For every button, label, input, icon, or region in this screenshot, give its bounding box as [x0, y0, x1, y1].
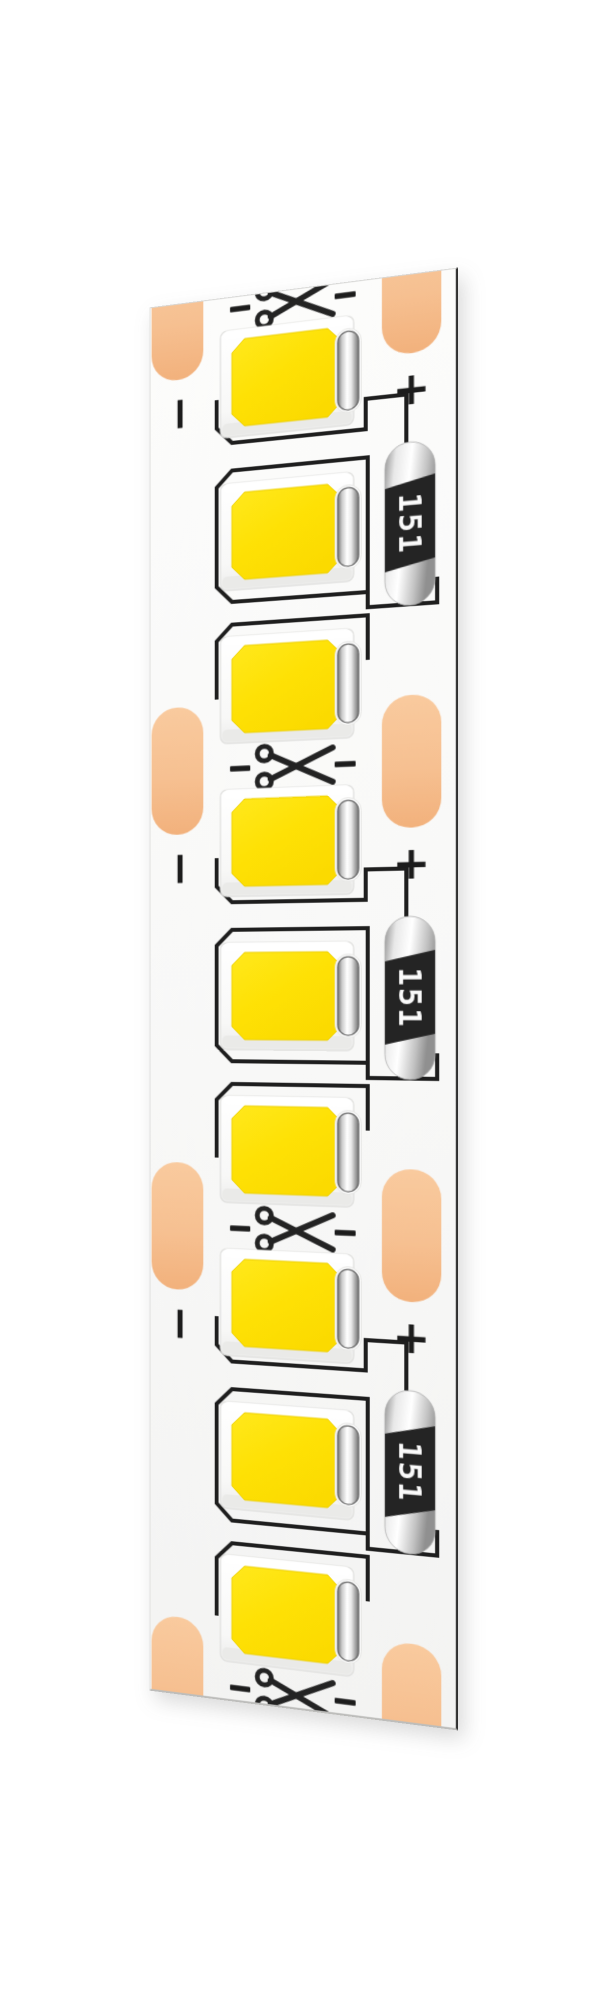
scissors-loop — [257, 1697, 271, 1713]
scissors-blade — [271, 1213, 333, 1245]
led-strip-shadow-wrap: −+151−+151−+151 — [143, 288, 453, 1707]
cut-dash-left — [230, 1225, 250, 1231]
led-emitter — [232, 952, 341, 1041]
scissors-loop — [257, 774, 271, 789]
led-chip — [220, 1248, 361, 1364]
minus-mark: − — [156, 1304, 207, 1345]
solder-pad-left — [152, 1614, 204, 1728]
scissors-loop — [257, 1236, 271, 1251]
led-strip-pcb: −+151−+151−+151 — [150, 268, 458, 1731]
scissors-loop — [257, 311, 271, 327]
cut-dash-right — [335, 1698, 356, 1706]
led-emitter — [232, 639, 341, 733]
resistor: 151 — [385, 440, 435, 607]
strip-segment: −+151 — [156, 782, 437, 1210]
scissors-icon — [257, 1670, 332, 1722]
led-electrode — [338, 1581, 359, 1662]
led-package-top-lip — [224, 941, 349, 951]
strip-segment: −+151 — [156, 1245, 437, 1686]
led-electrode — [338, 1113, 359, 1192]
scissors-blade — [271, 1218, 333, 1250]
scissors-loop — [257, 1670, 271, 1686]
led-emitter — [232, 327, 341, 427]
led-chip — [220, 1096, 361, 1208]
led-emitter — [232, 1412, 341, 1509]
led-chip — [220, 1401, 361, 1521]
scissors-blade — [271, 285, 333, 322]
cut-dash-left — [230, 305, 250, 313]
plus-mark: + — [393, 838, 431, 891]
scissors-icon — [257, 743, 332, 789]
scissors-blade — [271, 1675, 333, 1712]
plus-mark: + — [393, 1312, 431, 1366]
resistor-label: 151 — [392, 491, 427, 555]
led-electrode — [338, 800, 359, 879]
led-chip — [220, 785, 361, 897]
strip-segment: −+151 — [156, 305, 437, 747]
led-electrode — [338, 1425, 359, 1505]
led-emitter — [232, 483, 341, 580]
scissors-blade — [271, 747, 333, 779]
led-chip — [220, 471, 361, 591]
scissors-loop — [257, 1208, 271, 1223]
led-emitter — [232, 1565, 341, 1665]
solder-pad-right — [382, 269, 441, 357]
product-image-led-strip: −+151−+151−+151 — [0, 0, 600, 2000]
minus-mark: − — [156, 392, 207, 435]
led-electrode — [338, 1269, 359, 1349]
led-emitter — [232, 795, 341, 886]
resistor: 151 — [385, 1389, 435, 1556]
led-electrode — [338, 957, 359, 1036]
solder-pad-right — [382, 693, 441, 828]
resistor-label: 151 — [392, 967, 427, 1029]
solder-pad-right — [382, 1640, 441, 1728]
led-chip — [220, 628, 361, 744]
led-electrode — [338, 643, 359, 723]
solder-pad-right — [382, 1169, 441, 1304]
strip-artwork: −+151−+151−+151 — [151, 269, 456, 1728]
scissors-loop — [257, 746, 271, 761]
plus-mark: + — [393, 362, 431, 418]
minus-mark: − — [156, 849, 207, 888]
solder-pad-left — [152, 706, 204, 835]
led-chip — [220, 941, 361, 1050]
scissors-loop — [257, 283, 271, 299]
cut-dash-left — [230, 765, 250, 771]
led-chip — [220, 314, 361, 438]
led-emitter — [232, 1106, 341, 1197]
led-emitter — [232, 1259, 341, 1353]
resistor-label: 151 — [392, 1440, 427, 1504]
led-chip — [220, 1554, 361, 1678]
led-electrode — [338, 487, 359, 567]
scissors-blade — [271, 753, 333, 785]
cut-dash-right — [335, 1230, 356, 1236]
scissors-icon — [257, 1208, 332, 1254]
cut-dash-right — [335, 291, 356, 299]
solder-pad-left — [152, 1162, 204, 1291]
cut-dash-right — [335, 761, 356, 767]
led-electrode — [338, 330, 359, 411]
cut-dash-left — [230, 1684, 250, 1692]
solder-pad-left — [152, 269, 204, 383]
resistor: 151 — [385, 916, 435, 1080]
